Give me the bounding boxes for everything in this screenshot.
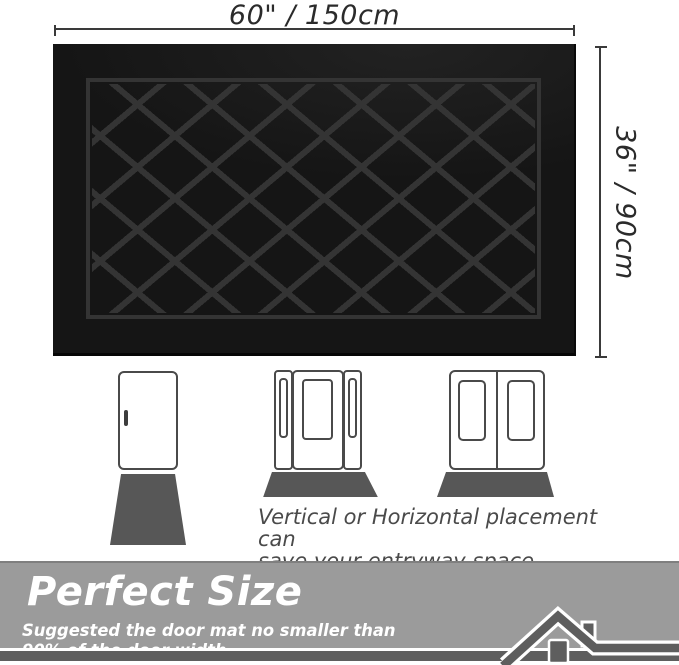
height-dimension-label: 36" / 90cm bbox=[611, 116, 641, 291]
mat-border-frame bbox=[86, 78, 541, 319]
mat-diamond-pattern bbox=[92, 84, 535, 313]
door-mat-product-image bbox=[53, 44, 576, 356]
dimension-endcap bbox=[595, 356, 607, 358]
door-window bbox=[302, 379, 333, 440]
house-roof-icon bbox=[495, 588, 679, 665]
door-window bbox=[507, 380, 535, 441]
double-door-illustration bbox=[449, 370, 545, 470]
horizontal-placement-mat bbox=[437, 472, 554, 497]
width-dimension-line bbox=[54, 28, 575, 30]
door-panel-right bbox=[496, 370, 545, 470]
sidelight-pane bbox=[279, 378, 288, 438]
height-dimension-line bbox=[599, 46, 601, 358]
product-dimension-diagram: 60" / 150cm 36" / 90cm bbox=[0, 0, 679, 665]
sidelight-door-illustration bbox=[274, 370, 362, 470]
door-sidelight-left bbox=[274, 370, 293, 470]
door-handle-icon bbox=[124, 410, 128, 426]
door-panel bbox=[292, 370, 344, 470]
door-panel-left bbox=[449, 370, 498, 470]
horizontal-placement-mat bbox=[262, 472, 379, 497]
width-dimension-label: 60" / 150cm bbox=[54, 0, 575, 31]
vertical-placement-mat bbox=[108, 474, 188, 545]
single-door-illustration bbox=[118, 371, 178, 470]
door-sidelight-right bbox=[343, 370, 362, 470]
dimension-endcap bbox=[595, 46, 607, 48]
dimension-endcap bbox=[573, 25, 575, 36]
sidelight-pane bbox=[348, 378, 357, 438]
door-window bbox=[458, 380, 486, 441]
dimension-endcap bbox=[54, 25, 56, 36]
banner-title: Perfect Size bbox=[27, 569, 302, 615]
placement-caption-line1: Vertical or Horizontal placement can bbox=[258, 506, 598, 550]
